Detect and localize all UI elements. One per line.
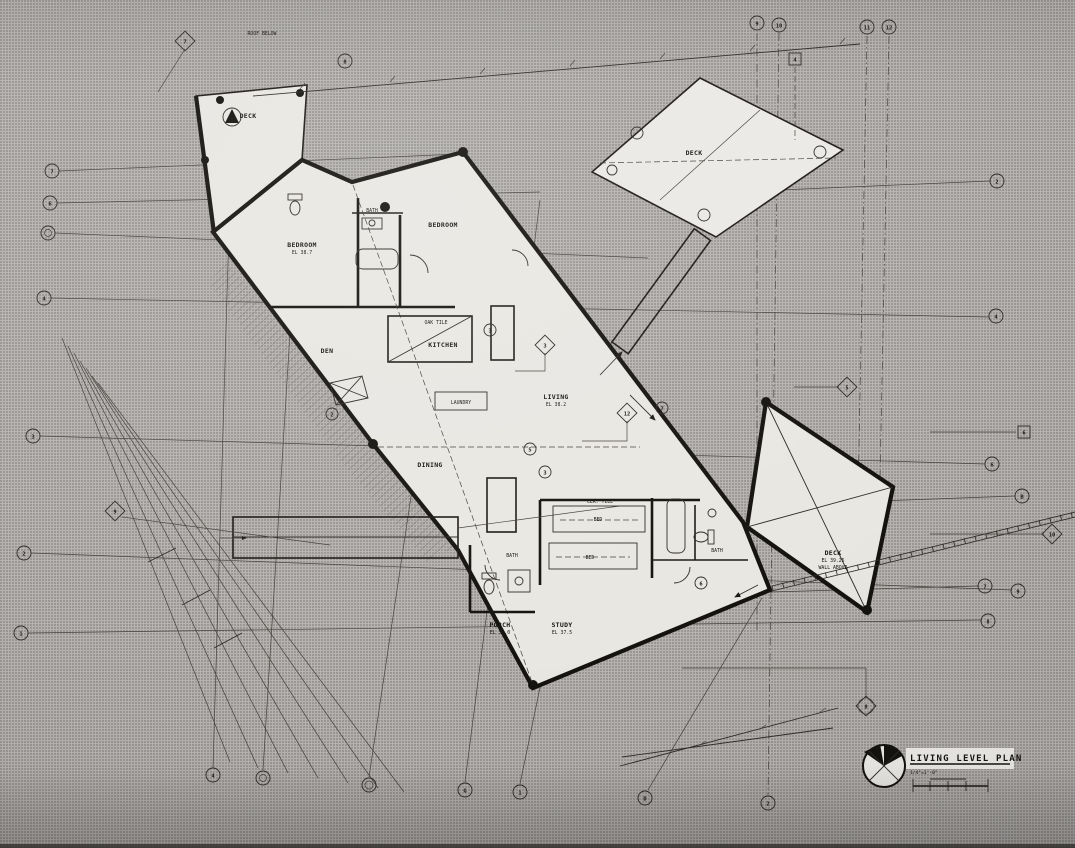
note-oak-tile: OAK TILE — [424, 320, 447, 326]
svg-text:7: 7 — [660, 407, 663, 413]
svg-text:WALL ABOVE: WALL ABOVE — [819, 565, 848, 571]
window-tag-diamond: 8 — [856, 696, 876, 716]
grid-bubble: 4 — [206, 768, 220, 782]
svg-text:2: 2 — [995, 180, 998, 186]
svg-text:6: 6 — [699, 582, 702, 588]
drawing-title: LIVING LEVEL PLAN — [910, 754, 1023, 764]
svg-text:8: 8 — [864, 705, 867, 711]
svg-text:9: 9 — [755, 22, 758, 28]
note-cer-tile: CER. TILE — [587, 499, 613, 505]
bed-label-2: BED — [586, 555, 595, 561]
roof-pavilion — [592, 78, 843, 237]
svg-text:12: 12 — [886, 26, 893, 32]
grid-bubble: G — [458, 783, 472, 797]
grid-bubble: 2 — [761, 796, 775, 810]
svg-text:12: 12 — [624, 412, 631, 418]
photo-edge — [0, 844, 1075, 848]
exterior-stair — [612, 229, 710, 354]
svg-text:9: 9 — [113, 510, 116, 516]
grid-bubble: 4 — [37, 291, 51, 305]
door-tag-square: 4 — [789, 53, 801, 65]
room-label-kitchen: KITCHEN — [428, 341, 458, 349]
grid-bubble: 1 — [513, 785, 527, 799]
grid-bubble: 7 — [45, 164, 59, 178]
grid-bubble: 9 — [1011, 584, 1025, 598]
grid-bubble: 7 — [978, 579, 992, 593]
grid-bubble: 3 — [26, 429, 40, 443]
grid-bubble: 5 — [41, 226, 55, 240]
svg-text:3: 3 — [31, 435, 34, 441]
room-label-deck-pavilion: DECK — [686, 149, 703, 157]
room-label-porch: PORCH — [489, 621, 510, 629]
svg-text:EL 37.0: EL 37.0 — [490, 630, 510, 636]
svg-text:4: 4 — [994, 315, 997, 321]
grid-bubble: D — [638, 791, 652, 805]
room-label-bath-2: BATH — [506, 553, 518, 559]
grid-bubble — [362, 778, 376, 792]
svg-text:2: 2 — [22, 552, 25, 558]
svg-text:1: 1 — [19, 632, 22, 638]
svg-text:2: 2 — [330, 413, 333, 419]
svg-text:3: 3 — [488, 329, 491, 335]
svg-text:4: 4 — [211, 774, 214, 780]
grid-bubble: 2 — [17, 546, 31, 560]
grid-bubble: 10 — [772, 18, 786, 32]
svg-text:8: 8 — [986, 620, 989, 626]
grid-bubble: 6 — [43, 196, 57, 210]
drawing-scale: 1/4"=1'-0" — [910, 770, 938, 776]
svg-text:6: 6 — [1022, 431, 1025, 437]
window-tag-diamond: 10 — [1042, 524, 1062, 544]
main-house-outline — [213, 147, 770, 690]
svg-text:5: 5 — [528, 448, 531, 454]
svg-text:7: 7 — [983, 585, 986, 591]
grid-bubble: 11 — [860, 20, 874, 34]
svg-text:G: G — [463, 789, 466, 795]
scale-bar — [913, 779, 988, 792]
room-label-bath-3: BATH — [711, 548, 723, 554]
svg-text:6: 6 — [48, 202, 51, 208]
svg-text:5: 5 — [845, 386, 848, 392]
svg-text:4: 4 — [42, 297, 45, 303]
svg-text:10: 10 — [1049, 533, 1056, 539]
svg-text:9: 9 — [1016, 590, 1019, 596]
grid-bubble: 9 — [750, 16, 764, 30]
room-label-bath-1: BATH — [366, 208, 378, 214]
svg-text:10: 10 — [776, 24, 783, 30]
room-label-laundry: LAUNDRY — [451, 400, 471, 406]
svg-text:EL 39.25: EL 39.25 — [821, 558, 844, 564]
svg-text:6: 6 — [990, 463, 993, 469]
svg-text:11: 11 — [864, 26, 871, 32]
svg-text:7: 7 — [50, 170, 53, 176]
grid-bubble: 2 — [990, 174, 1004, 188]
room-label-deck-right: DECK — [825, 549, 842, 557]
grid-bubble: 12 — [882, 20, 896, 34]
room-label-living: LIVING — [543, 393, 568, 401]
svg-text:1: 1 — [518, 791, 521, 797]
grid-bubble: 6 — [985, 457, 999, 471]
svg-text:EL 38.7: EL 38.7 — [292, 250, 312, 256]
room-label-study: STUDY — [551, 621, 572, 629]
svg-text:8: 8 — [343, 60, 346, 66]
svg-text:2: 2 — [766, 802, 769, 808]
floor-plan-drawing: 7 6 5 4 3 2 1 8 9 10 11 12 2 4 6 B 7 9 8… — [0, 0, 1075, 848]
svg-text:3: 3 — [543, 471, 546, 477]
scanned-floor-plan-photo: 7 6 5 4 3 2 1 8 9 10 11 12 2 4 6 B 7 9 8… — [0, 0, 1075, 848]
grid-bubble — [256, 771, 270, 785]
title-block: LIVING LEVEL PLAN 1/4"=1'-0" — [863, 744, 1023, 792]
grid-bubble: 1 — [14, 626, 28, 640]
grid-bubble: 8 — [981, 614, 995, 628]
svg-text:7: 7 — [183, 40, 186, 46]
room-label-bedroom-2: BEDROOM — [428, 221, 458, 229]
window-tag-diamond: 9 — [105, 501, 125, 521]
room-label-den: DEN — [321, 347, 334, 355]
grid-bubble: B — [1015, 489, 1029, 503]
grid-bubble: 8 — [338, 54, 352, 68]
svg-text:4: 4 — [793, 58, 796, 64]
note-roof-below: ROOF BELOW — [248, 31, 277, 37]
svg-text:B: B — [1020, 495, 1024, 501]
svg-text:EL 38.2: EL 38.2 — [546, 402, 566, 408]
north-arrow-icon — [863, 744, 905, 787]
window-tag-diamond: 7 — [175, 31, 195, 51]
svg-text:3: 3 — [543, 344, 546, 350]
svg-text:EL 37.5: EL 37.5 — [552, 630, 572, 636]
room-label-deck-upper: DECK — [240, 112, 257, 120]
room-label-bedroom-1: BEDROOM — [287, 241, 317, 249]
window-tag-diamond: 5 — [837, 377, 857, 397]
grid-bubble: 4 — [989, 309, 1003, 323]
room-label-dining: DINING — [417, 461, 442, 469]
bed-label-1: BED — [594, 517, 603, 523]
svg-text:D: D — [643, 797, 646, 803]
door-tag-square: 6 — [1018, 426, 1030, 438]
